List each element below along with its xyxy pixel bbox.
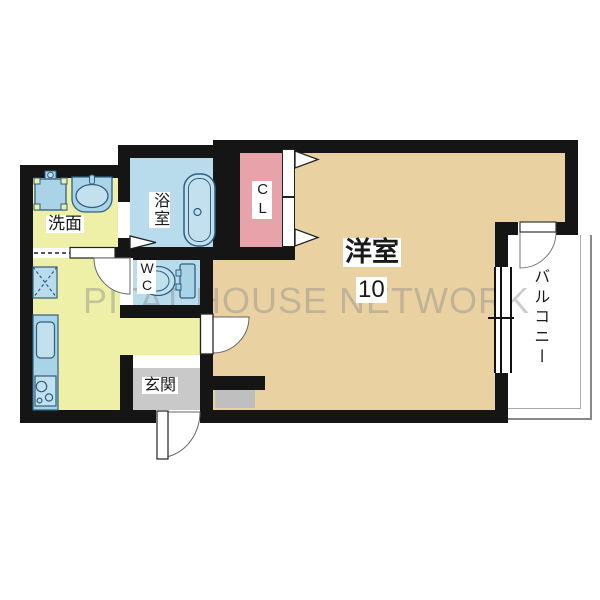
bathroom-doorway	[118, 202, 130, 238]
balcony-doorway	[518, 222, 556, 235]
closet-label: CL	[252, 181, 272, 219]
wc-label: WC	[137, 260, 156, 294]
main-room-label: 洋室	[343, 238, 401, 267]
wall-segment	[565, 140, 578, 235]
closet-door-strip	[282, 149, 295, 247]
sliding-window	[494, 267, 512, 373]
window-tick	[488, 317, 514, 319]
wc-doorway	[120, 258, 133, 305]
wall-segment	[213, 140, 240, 260]
entrance-doorway	[156, 410, 200, 423]
room-entrance-step	[133, 355, 200, 368]
wall-segment	[495, 373, 508, 423]
bathroom-label: 浴室	[149, 192, 170, 228]
wall-segment	[213, 376, 265, 390]
wall-segment	[495, 235, 508, 267]
main-room-size-label: 10	[356, 277, 387, 303]
wall-segment	[20, 165, 130, 178]
balcony-label: バルコニー	[529, 268, 550, 368]
wall-segment	[228, 140, 578, 153]
wall-segment	[200, 353, 213, 412]
entrance-label: 玄関	[142, 377, 178, 394]
room-bathroom	[130, 158, 215, 250]
shoe-cabinet	[215, 390, 255, 408]
wall-segment	[20, 410, 508, 423]
wall-segment	[120, 355, 133, 412]
floorplan: PITAT HOUSE NETWORK	[0, 0, 600, 600]
closet-door-divider	[283, 196, 294, 198]
washroom-boundary	[33, 248, 70, 258]
washroom-label: 洗面	[46, 215, 84, 233]
wall-segment	[20, 165, 33, 423]
sliding-window-center-rail	[500, 267, 502, 373]
wall-segment	[228, 247, 295, 260]
wall-segment	[200, 260, 213, 315]
